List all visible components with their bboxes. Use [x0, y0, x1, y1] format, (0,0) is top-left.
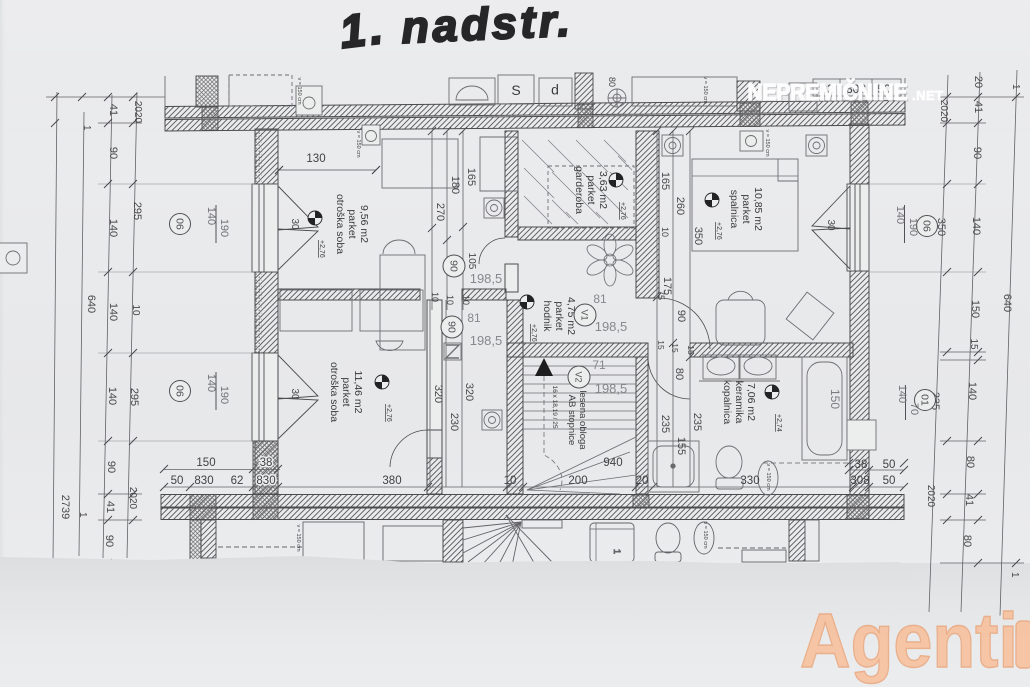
svg-text:180: 180 [449, 176, 461, 194]
svg-text:S: S [511, 82, 520, 98]
svg-text:15: 15 [968, 338, 979, 350]
svg-text:80: 80 [607, 77, 617, 87]
svg-text:260: 260 [674, 197, 686, 215]
svg-text:350: 350 [692, 227, 704, 245]
svg-text:70: 70 [908, 403, 920, 415]
svg-text:10: 10 [130, 304, 141, 316]
svg-text:140: 140 [205, 374, 217, 392]
svg-text:kopalnica: kopalnica [721, 380, 733, 425]
svg-text:295: 295 [128, 388, 140, 406]
svg-text:105: 105 [466, 253, 477, 270]
svg-text:190: 190 [907, 218, 919, 236]
svg-text:165: 165 [465, 168, 477, 186]
svg-text:80: 80 [673, 368, 685, 380]
svg-text:lesena obloga: lesena obloga [577, 390, 588, 450]
svg-text:+2,76: +2,76 [385, 404, 392, 422]
svg-text:v = 150 cm: v = 150 cm [296, 77, 302, 104]
svg-text:140: 140 [896, 385, 908, 403]
svg-text:+2,76: +2,76 [715, 222, 722, 240]
svg-text:1: 1 [81, 125, 92, 131]
svg-text:7,06 m2: 7,06 m2 [745, 383, 757, 421]
svg-text:06: 06 [174, 385, 186, 397]
svg-text:830: 830 [256, 475, 275, 487]
svg-text:otroška soba: otroška soba [334, 194, 346, 254]
svg-text:81: 81 [467, 311, 481, 325]
svg-text:garderoba: garderoba [573, 166, 585, 214]
svg-text:spalnica: spalnica [728, 190, 740, 229]
svg-text:140: 140 [107, 303, 119, 321]
svg-text:1: 1 [1010, 84, 1021, 90]
svg-text:parket: parket [553, 301, 565, 330]
svg-text:hodnik: hodnik [541, 301, 553, 333]
svg-text:38: 38 [260, 457, 273, 469]
svg-text:140: 140 [107, 219, 119, 237]
svg-text:.NET: .NET [912, 88, 944, 103]
svg-text:50: 50 [171, 475, 184, 487]
svg-text:+2,76: +2,76 [619, 202, 626, 220]
svg-text:2020: 2020 [938, 100, 949, 123]
svg-text:15: 15 [670, 343, 680, 353]
svg-text:190: 190 [218, 219, 230, 237]
svg-text:v = 150 cm: v = 150 cm [764, 129, 770, 156]
svg-text:v = 150 cm: v = 150 cm [355, 130, 361, 157]
svg-text:940: 940 [603, 457, 622, 469]
svg-text:keramika: keramika [733, 381, 745, 424]
svg-text:62: 62 [231, 475, 244, 487]
svg-text:150: 150 [969, 300, 981, 318]
svg-text:parket: parket [585, 175, 597, 204]
svg-text:155: 155 [675, 437, 687, 455]
svg-text:90: 90 [971, 147, 983, 159]
svg-text:90: 90 [105, 461, 117, 473]
svg-text:p: p [551, 84, 559, 100]
svg-text:20: 20 [972, 76, 984, 88]
svg-text:41: 41 [104, 501, 116, 513]
svg-text:nadstr.: nadstr. [400, 0, 574, 53]
svg-text:1.: 1. [337, 1, 389, 58]
svg-text:2020: 2020 [127, 487, 138, 510]
svg-text:308: 308 [850, 475, 869, 487]
svg-text:640: 640 [1001, 294, 1013, 312]
svg-text:30: 30 [289, 388, 300, 400]
svg-text:165: 165 [659, 172, 671, 190]
svg-text:80: 80 [961, 535, 973, 547]
svg-text:v = 150 cm: v = 150 cm [295, 524, 301, 551]
svg-text:75: 75 [656, 290, 666, 300]
svg-text:80: 80 [964, 456, 976, 468]
svg-text:V1: V1 [580, 309, 590, 320]
svg-text:380: 380 [382, 475, 401, 487]
svg-text:20: 20 [636, 475, 649, 487]
svg-text:150: 150 [828, 389, 842, 409]
svg-text:06: 06 [174, 218, 186, 230]
svg-text:10: 10 [504, 475, 517, 487]
svg-text:+2,74: +2,74 [775, 414, 782, 432]
svg-text:11,46 m2: 11,46 m2 [352, 371, 364, 414]
svg-text:otroška soba: otroška soba [328, 362, 340, 422]
svg-text:230: 230 [448, 413, 460, 431]
svg-text:NEPREMIČNINE: NEPREMIČNINE [748, 78, 908, 105]
svg-text:90: 90 [675, 310, 687, 322]
svg-text:140: 140 [205, 207, 217, 225]
svg-text:parket: parket [340, 377, 352, 406]
svg-text:235: 235 [691, 413, 703, 431]
svg-text:190: 190 [218, 386, 230, 404]
svg-text:140: 140 [894, 206, 906, 224]
svg-text:10: 10 [461, 295, 471, 305]
svg-text:16 x 18,19 / 25: 16 x 18,19 / 25 [551, 385, 558, 428]
svg-text:v = 150 cm: v = 150 cm [702, 521, 708, 548]
svg-text:1: 1 [612, 549, 622, 554]
svg-text:90: 90 [446, 321, 458, 333]
svg-text:198,5: 198,5 [470, 271, 503, 286]
svg-text:235: 235 [659, 415, 671, 433]
svg-text:parket: parket [346, 209, 358, 238]
svg-text:330: 330 [740, 475, 759, 487]
svg-text:30: 30 [825, 219, 836, 231]
svg-text:v = 150 cm: v = 150 cm [702, 76, 708, 103]
svg-text:2020: 2020 [132, 101, 143, 124]
svg-text:270: 270 [434, 203, 446, 221]
svg-text:10: 10 [445, 295, 455, 305]
svg-text:38: 38 [855, 459, 868, 471]
svg-text:Agenti: Agenti [800, 598, 1018, 684]
svg-text:198,5: 198,5 [595, 319, 628, 334]
svg-text:90: 90 [107, 147, 119, 159]
svg-text:1: 1 [1009, 572, 1020, 578]
svg-text:71: 71 [592, 358, 606, 372]
svg-text:140: 140 [106, 387, 118, 405]
svg-text:320: 320 [463, 383, 475, 401]
svg-text:2739: 2739 [59, 495, 71, 519]
svg-text:640: 640 [85, 295, 97, 313]
svg-text:15: 15 [686, 345, 696, 355]
svg-text:+2,76: +2,76 [318, 240, 325, 258]
svg-text:AB stopnice: AB stopnice [566, 395, 577, 446]
svg-text:10: 10 [660, 227, 670, 237]
svg-text:295: 295 [131, 202, 143, 220]
svg-text:41: 41 [963, 494, 975, 506]
svg-text:06: 06 [921, 220, 933, 232]
svg-text:150: 150 [196, 457, 215, 469]
svg-text:50: 50 [883, 459, 896, 471]
svg-text:198,5: 198,5 [470, 333, 503, 348]
svg-text:+2,76: +2,76 [530, 324, 537, 342]
svg-text:parket: parket [740, 194, 752, 223]
svg-text:50: 50 [883, 475, 896, 487]
svg-text:140: 140 [970, 217, 982, 235]
svg-text:320: 320 [432, 385, 444, 403]
svg-text:10,85 m2: 10,85 m2 [752, 187, 764, 231]
svg-text:v = 150 cm: v = 150 cm [765, 463, 771, 490]
svg-text:198,5: 198,5 [595, 381, 628, 396]
svg-text:90: 90 [448, 260, 460, 272]
svg-text:200: 200 [568, 475, 587, 487]
svg-text:1: 1 [77, 512, 88, 518]
svg-text:41: 41 [107, 104, 119, 116]
svg-text:10: 10 [430, 292, 440, 302]
svg-text:30: 30 [289, 218, 300, 230]
svg-text:V2: V2 [574, 371, 584, 382]
svg-text:81: 81 [593, 292, 607, 306]
svg-text:830: 830 [194, 475, 213, 487]
svg-text:9,56 m2: 9,56 m2 [358, 205, 370, 243]
svg-text:130: 130 [306, 153, 325, 165]
svg-text:3,63 m2: 3,63 m2 [597, 171, 609, 209]
svg-text:140: 140 [966, 382, 978, 400]
svg-text:15: 15 [656, 340, 666, 350]
svg-text:90: 90 [103, 535, 115, 547]
svg-text:2020: 2020 [925, 485, 936, 508]
svg-text:41: 41 [972, 101, 984, 113]
